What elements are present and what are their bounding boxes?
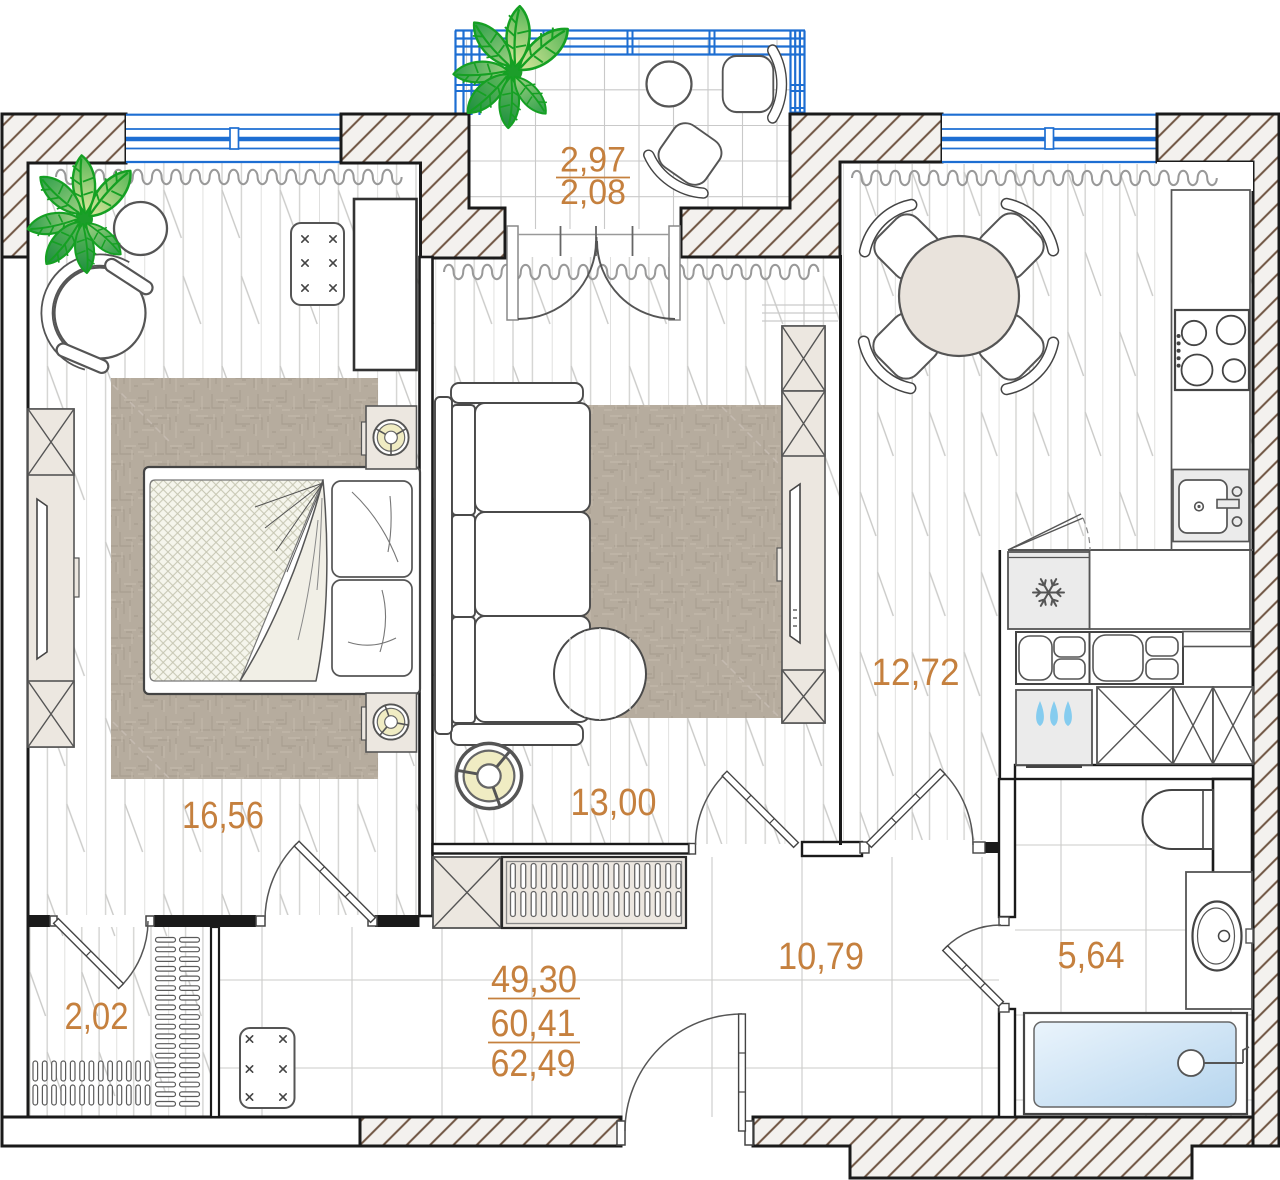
svg-text:5,64: 5,64: [1058, 935, 1125, 977]
svg-text:2,02: 2,02: [65, 996, 129, 1038]
svg-text:49,30: 49,30: [491, 959, 577, 1001]
svg-text:12,72: 12,72: [872, 652, 960, 694]
svg-text:13,00: 13,00: [571, 782, 657, 824]
svg-text:60,41: 60,41: [491, 1003, 576, 1045]
svg-text:2,08: 2,08: [560, 173, 626, 212]
svg-text:62,49: 62,49: [491, 1043, 576, 1085]
svg-text:10,79: 10,79: [778, 936, 864, 978]
svg-text:16,56: 16,56: [182, 795, 264, 837]
